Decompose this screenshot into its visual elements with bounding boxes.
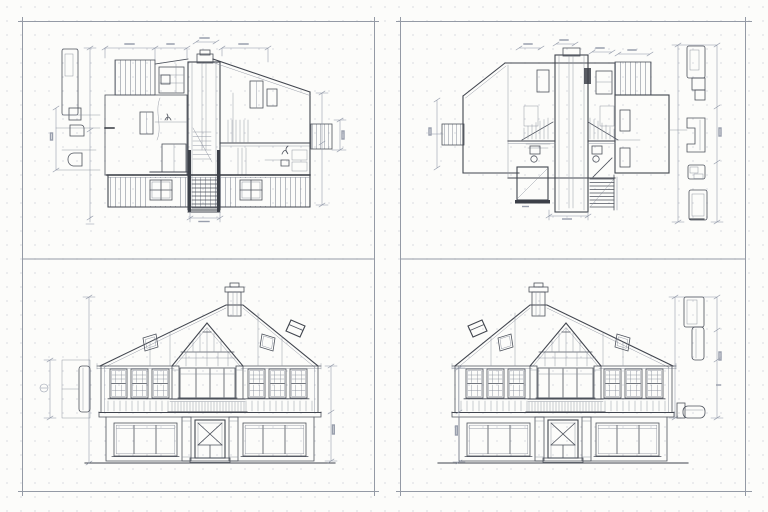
drawing-canvas: { "document": { "kind": "architectural w… xyxy=(0,0,768,512)
house-elevation-mirrored xyxy=(438,283,688,463)
sheet-section-b xyxy=(400,21,746,259)
right-detail-strip xyxy=(669,43,723,224)
garage-door xyxy=(515,167,550,207)
right-stair-rail xyxy=(588,106,618,140)
left-profile-detail xyxy=(51,46,101,224)
sheet-section-a xyxy=(22,21,374,259)
right-detail-strip xyxy=(669,295,723,420)
left-stair-rail xyxy=(522,106,553,148)
section-building xyxy=(105,50,332,212)
section-building xyxy=(429,48,669,220)
right-dimensions xyxy=(325,364,337,463)
top-dimensions xyxy=(516,40,653,56)
house-elevation xyxy=(85,283,335,463)
stair-shaft xyxy=(555,48,588,212)
left-detail xyxy=(40,295,95,465)
sheet-elevation-rear xyxy=(22,259,374,492)
basement xyxy=(107,143,310,207)
lower-stairs xyxy=(590,175,617,210)
sheet-elevation-front xyxy=(400,259,746,492)
top-dimensions xyxy=(102,38,271,62)
